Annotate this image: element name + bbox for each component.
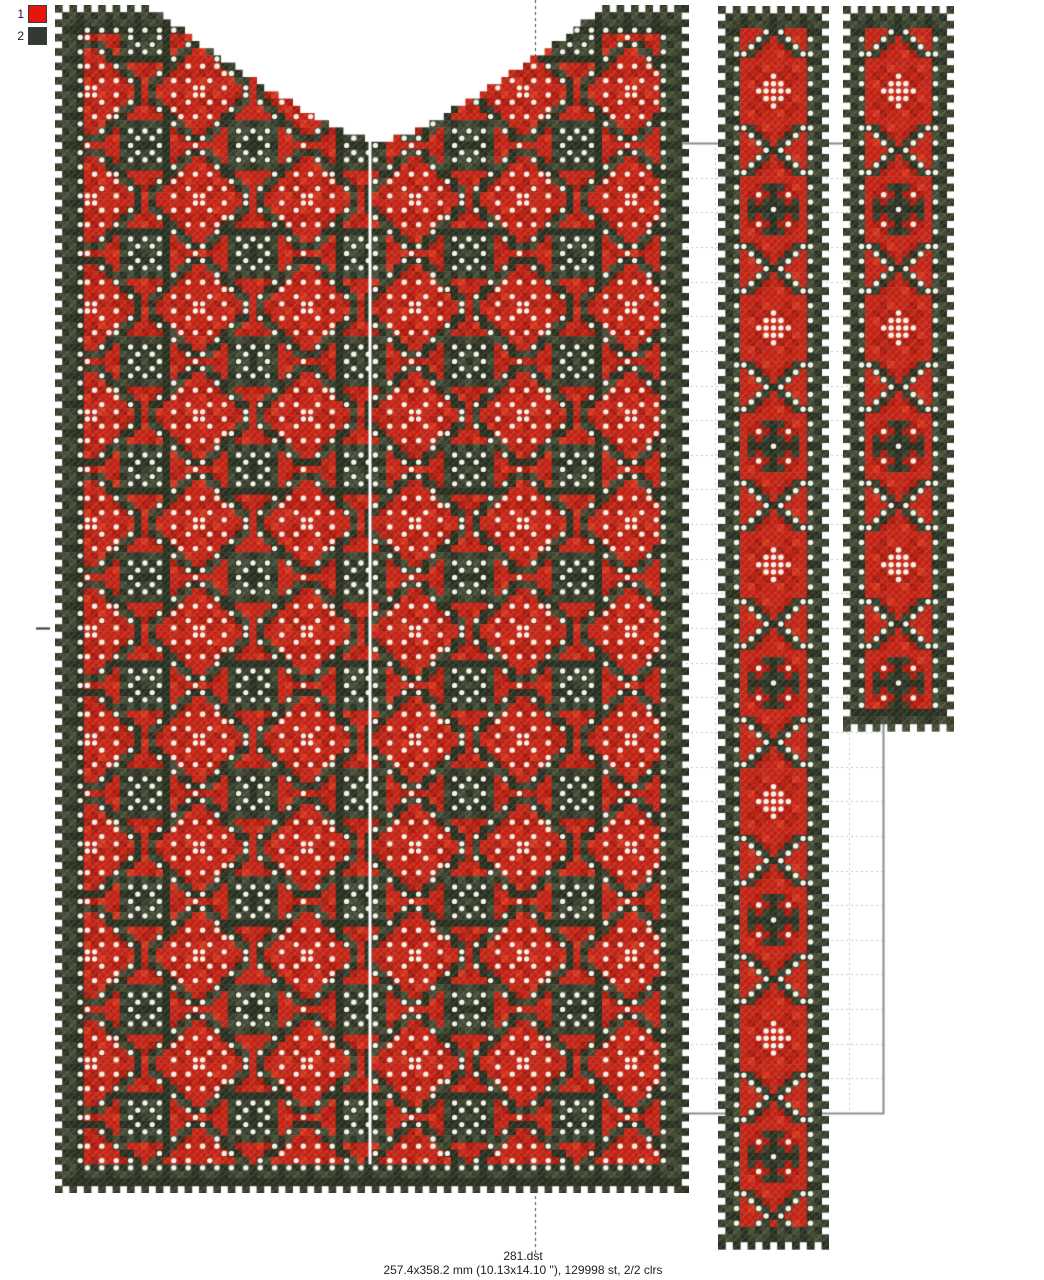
status-bar: 281.dst 257.4x358.2 mm (10.13x14.10 "), … bbox=[223, 1249, 823, 1277]
palette-row-1: 1 bbox=[10, 4, 47, 23]
shirt-front-panel-design[interactable] bbox=[55, 5, 689, 1193]
design-stats: 257.4x358.2 mm (10.13x14.10 "), 129998 s… bbox=[223, 1263, 823, 1277]
thread-color-palette: 1 2 bbox=[10, 4, 47, 48]
sleeve-band-design-2[interactable] bbox=[843, 6, 954, 732]
thread-number-1: 1 bbox=[10, 7, 24, 21]
sleeve-band-design-1[interactable] bbox=[718, 6, 829, 1250]
palette-row-2: 2 bbox=[10, 26, 47, 45]
thread-number-2: 2 bbox=[10, 29, 24, 43]
thread-swatch-red[interactable] bbox=[28, 5, 47, 23]
design-filename: 281.dst bbox=[223, 1249, 823, 1263]
thread-swatch-dark[interactable] bbox=[28, 27, 47, 45]
embroidery-workspace: 1 2 281.dst 257.4x358.2 mm (10.13x14.10 … bbox=[0, 0, 1044, 1280]
